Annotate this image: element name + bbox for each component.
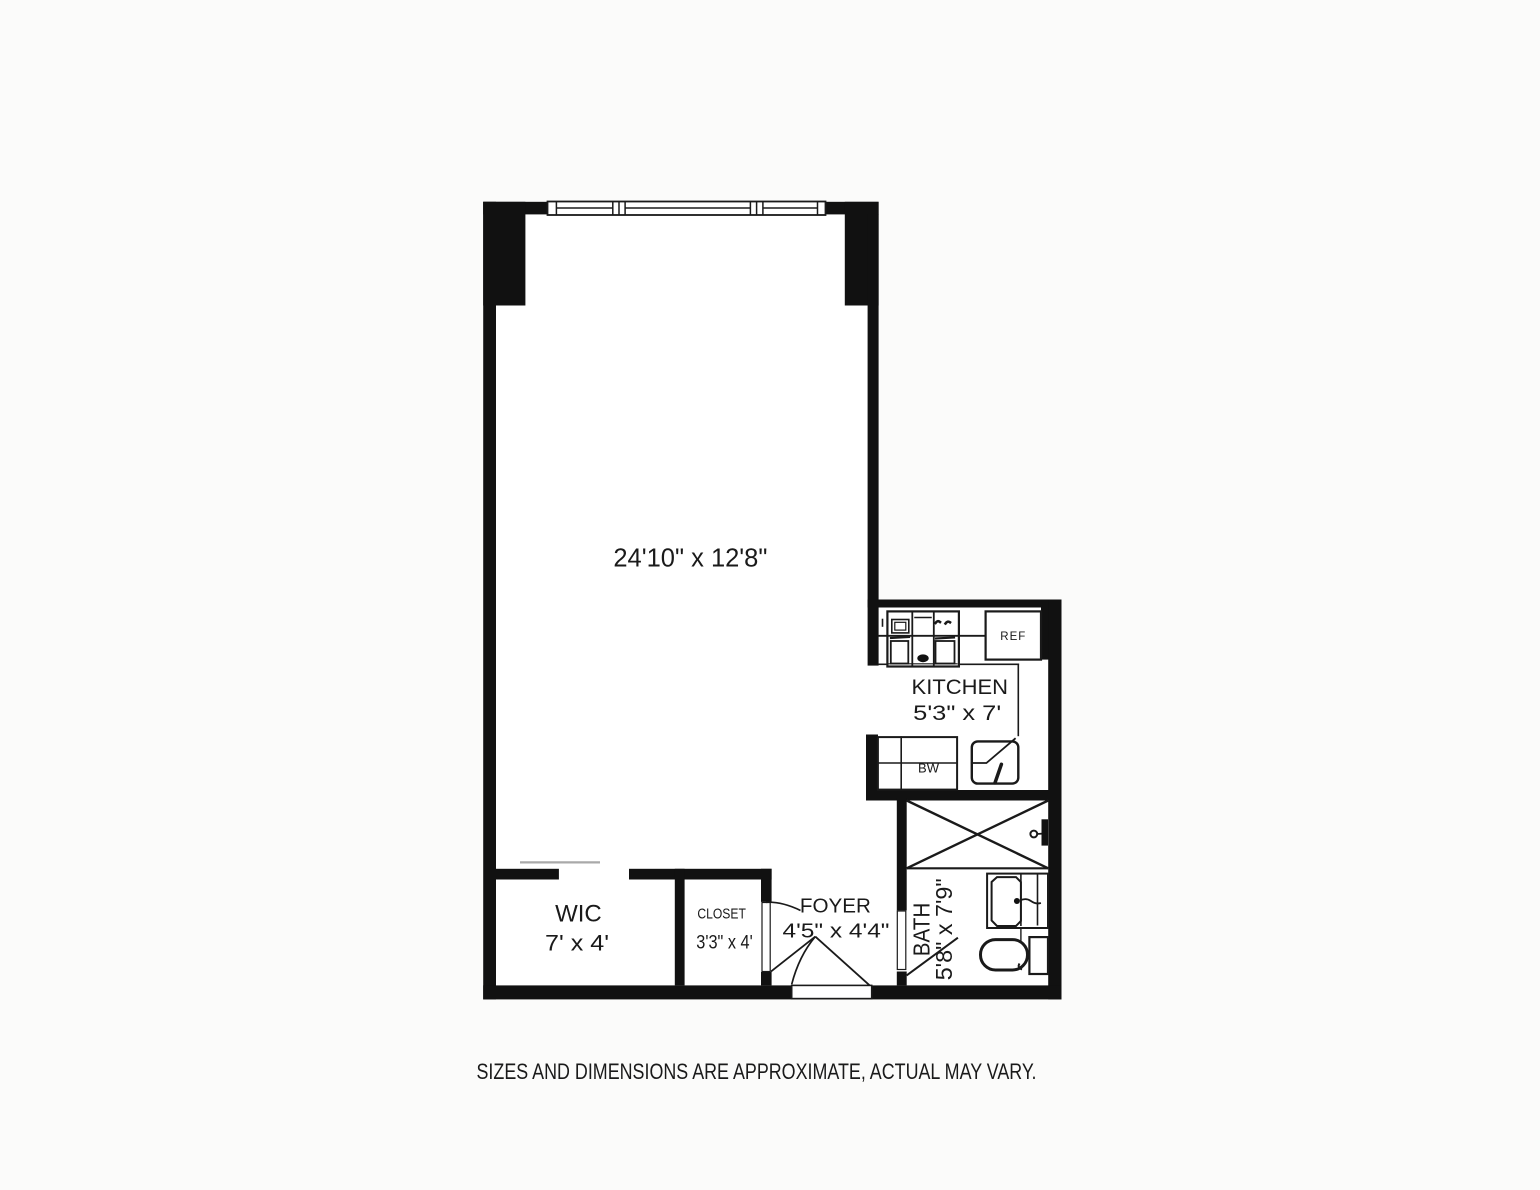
svg-text:BW: BW	[918, 761, 940, 776]
svg-text:SIZES AND DIMENSIONS ARE APPRO: SIZES AND DIMENSIONS ARE APPROXIMATE, AC…	[477, 1059, 1037, 1084]
svg-text:24'10" x 12'8": 24'10" x 12'8"	[613, 544, 767, 572]
svg-text:WIC: WIC	[555, 901, 602, 928]
svg-text:7' x 4': 7' x 4'	[545, 931, 609, 956]
svg-text:3'3" x 4': 3'3" x 4'	[696, 933, 752, 954]
svg-text:CLOSET: CLOSET	[697, 906, 746, 922]
svg-text:5'3" x 7': 5'3" x 7'	[913, 701, 1001, 725]
svg-text:REF: REF	[1000, 631, 1026, 643]
svg-text:FOYER: FOYER	[800, 894, 871, 917]
svg-text:KITCHEN: KITCHEN	[912, 676, 1009, 699]
svg-text:5'8" x 7'9": 5'8" x 7'9"	[931, 878, 957, 980]
svg-text:4'5" x 4'4": 4'5" x 4'4"	[783, 919, 890, 942]
